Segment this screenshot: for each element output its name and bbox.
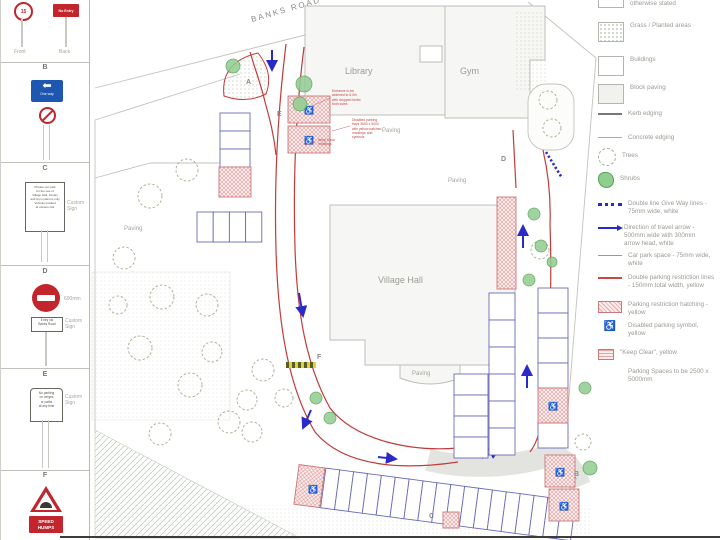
legend-label: "Keep Clear", yellow [620, 349, 708, 357]
keep-clear-icon [598, 349, 614, 360]
section-e-heading: E [1, 371, 89, 378]
drawing-border [60, 536, 720, 538]
legend-row: Parking restriction hatching - yellow [598, 301, 716, 317]
block-paving-swatch-icon [598, 84, 624, 104]
legend-row: Shrubs [598, 172, 708, 188]
legend-row: Kerb edging [598, 110, 716, 118]
wheelchair-icon: ♿ [598, 322, 622, 332]
no-stopping-roundel [39, 107, 56, 124]
legend-label: Car park space - 75mm wide, white [628, 252, 716, 268]
section-divider [1, 62, 89, 63]
neighbour-paving [92, 272, 230, 420]
legend-label: Grass / Planted areas [630, 22, 718, 30]
legend-label: Direction of travel arrow - 500mm wide w… [624, 224, 712, 248]
building-swatch-icon [598, 56, 624, 76]
section-divider [1, 470, 89, 471]
section-divider [1, 162, 89, 163]
marker-c: C [429, 513, 434, 520]
marker-d: D [501, 156, 506, 163]
legend: otherwise stated Grass / Planted areas B… [596, 0, 720, 420]
section-f-heading: F [1, 472, 89, 479]
paving-label: Paving [412, 371, 430, 377]
annotation: Disabled parking bays 3600 x 5000 with y… [352, 118, 381, 139]
sign-back-label: Back [59, 49, 70, 55]
paving-label: Paving [124, 226, 142, 232]
wheelchair-icon: ♿ [555, 467, 565, 477]
village-hall-label: Village Hall [378, 275, 423, 285]
gym-terrace [515, 12, 548, 90]
legend-label: Concrete edging [628, 134, 716, 142]
section-b-heading: B [1, 64, 89, 71]
custom-text-sign: Private car park for the use of Village … [25, 182, 65, 232]
outbuilding [420, 46, 442, 62]
give-way-line-icon [598, 203, 622, 206]
no-entry-plate: No Entry [53, 4, 79, 17]
sign-post [42, 420, 49, 468]
section-divider [1, 368, 89, 369]
legend-row: Car park space - 75mm wide, white [598, 252, 716, 268]
legend-label: Shrubs [620, 175, 708, 183]
legend-label: Disabled parking symbol, yellow [628, 322, 716, 338]
library-label: Library [345, 66, 373, 76]
custom-text-sign: No parking on verges or paths at any tim… [30, 388, 63, 422]
sign-post [45, 332, 47, 366]
legend-label: Double parking restriction lines - 150mm… [628, 274, 716, 290]
legend-label: Block paving [630, 84, 718, 92]
section-d-heading: D [1, 268, 89, 275]
marker-a: A [246, 79, 251, 86]
legend-label: Double line Give Way lines - 75mm wide, … [628, 200, 716, 216]
custom-sign-note: Custom Sign [65, 394, 82, 406]
travel-arrow-icon [598, 227, 618, 229]
restriction-line-icon [598, 277, 622, 279]
car-park-plan: Library Gym Village Hall Paving Paving P… [88, 0, 600, 540]
legend-row: otherwise stated [598, 0, 718, 8]
left-arrow-icon: ⬅ [31, 80, 63, 92]
no-entry-sign [32, 284, 60, 312]
wheelchair-icon: ♿ [308, 484, 318, 494]
sign-front-label: Front [14, 49, 26, 55]
restriction-hatch-icon [598, 301, 622, 313]
car-park-space-line-icon [598, 255, 622, 256]
no-entry-plate-text: No Entry [59, 9, 74, 13]
paving-label: Paving [382, 128, 400, 134]
no-entry-bar [37, 295, 55, 301]
paving-label: Paving [448, 178, 466, 184]
annotation: Entrance to be widened to 6.0m with drop… [332, 89, 361, 106]
concrete-line-icon [598, 137, 622, 138]
sign-schedule-sidebar: 15 No Entry Front Back B ⬅ One way C Pri… [0, 0, 90, 540]
legend-row: ♿ Disabled parking symbol, yellow [598, 322, 716, 338]
legend-label: Kerb edging [628, 110, 716, 118]
shrub-icon [598, 172, 614, 188]
legend-row: Buildings [598, 56, 718, 76]
wheelchair-icon: ♿ [548, 401, 558, 411]
one-way-caption: One way [31, 92, 63, 96]
legend-row: Double parking restriction lines - 150mm… [598, 274, 716, 290]
sign-post [43, 125, 50, 160]
legend-row: Double line Give Way lines - 75mm wide, … [598, 200, 716, 216]
site-plan-page: { "sidebar": { "sections": { "a": {"fron… [0, 0, 720, 540]
legend-label: otherwise stated [630, 0, 718, 8]
section-divider [1, 265, 89, 266]
legend-label: Trees [622, 152, 710, 160]
speed-humps-plate: SPEED HUMPS [29, 516, 63, 533]
hump-icon [40, 502, 52, 508]
legend-row: Block paving [598, 84, 718, 104]
grass-swatch-icon [598, 22, 624, 42]
section-c-heading: C [1, 165, 89, 172]
wheelchair-icon: ♿ [559, 501, 569, 511]
custom-sign-note: Custom Sign [67, 200, 84, 212]
legend-row: Trees [598, 148, 710, 166]
one-way-sign: ⬅ One way [31, 80, 63, 102]
legend-label: Parking Spaces to be 2500 x 5000mm [628, 368, 716, 384]
sign-post [65, 17, 67, 47]
village-hall-building [330, 205, 515, 365]
legend-row: Direction of travel arrow - 500mm wide w… [598, 224, 712, 248]
kerb-line-icon [598, 113, 622, 115]
sign-dimension: 600mm [64, 296, 81, 302]
sign-post [41, 230, 48, 262]
speed-limit-sign: 15 [14, 2, 33, 21]
sign-post [21, 19, 23, 47]
speed-limit-value: 15 [21, 9, 27, 15]
custom-sign-note: Custom Sign [65, 318, 82, 330]
entry-plate: Entry via Banks Road [31, 317, 63, 332]
annotation: Keep Clear markings [318, 138, 335, 147]
legend-box-icon [598, 0, 624, 8]
legend-row: Parking Spaces to be 2500 x 5000mm [598, 368, 716, 384]
marker-f: F [317, 354, 322, 361]
gym-label: Gym [460, 66, 479, 76]
legend-row: Concrete edging [598, 134, 716, 142]
legend-row: Grass / Planted areas [598, 22, 718, 42]
marker-b: B [574, 471, 579, 478]
wheelchair-icon: ♿ [304, 135, 314, 145]
marker-e: E [277, 111, 282, 118]
landscape-island [528, 84, 574, 150]
legend-row: "Keep Clear", yellow [598, 349, 708, 360]
tree-icon [598, 148, 616, 166]
legend-label: Parking restriction hatching - yellow [628, 301, 716, 317]
legend-label: Buildings [630, 56, 718, 64]
